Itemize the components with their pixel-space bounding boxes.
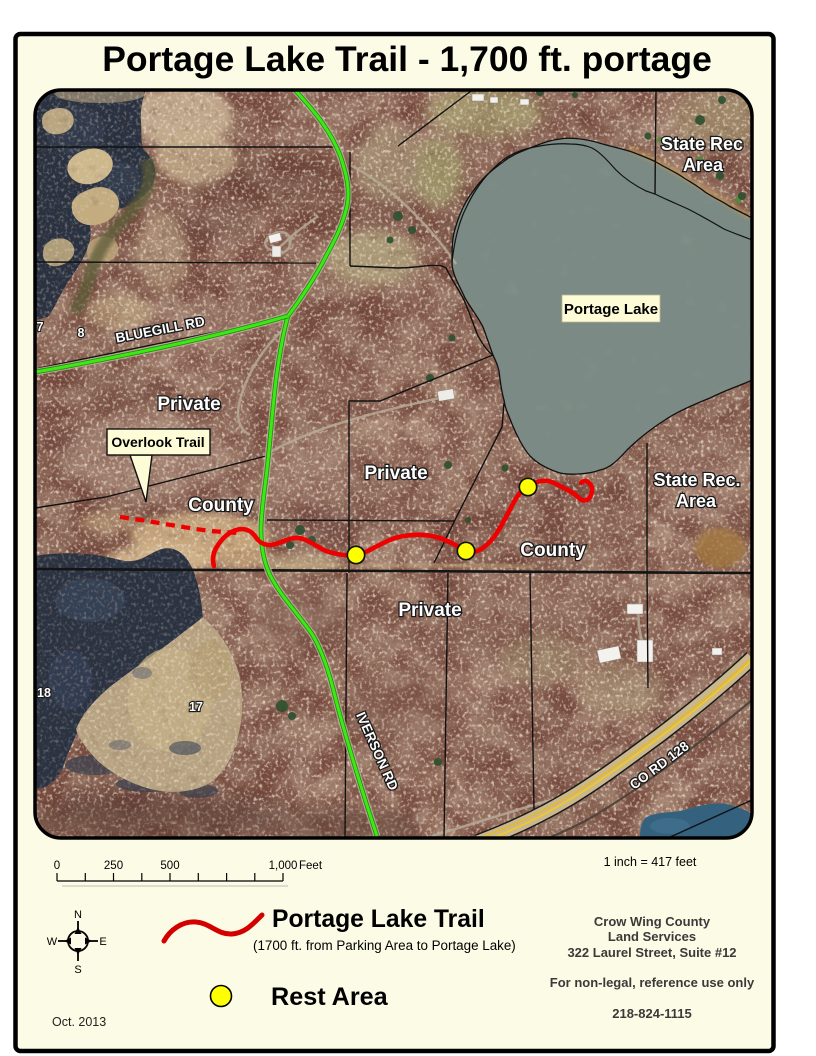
svg-text:N: N (74, 909, 82, 921)
svg-text:Feet: Feet (299, 860, 323, 872)
svg-text:State Rec.: State Rec. (653, 470, 740, 490)
svg-text:7: 7 (37, 320, 44, 334)
svg-text:500: 500 (160, 860, 179, 872)
svg-text:Portage Lake: Portage Lake (564, 301, 658, 318)
svg-text:Portage Lake Trail - 1,700 ft.: Portage Lake Trail - 1,700 ft. portage (102, 39, 712, 79)
svg-text:Portage Lake Trail: Portage Lake Trail (272, 906, 485, 933)
svg-text:Private: Private (364, 463, 427, 484)
svg-text:250: 250 (104, 860, 123, 872)
svg-text:0: 0 (54, 860, 60, 872)
svg-text:18: 18 (37, 686, 51, 700)
svg-text:County: County (520, 540, 586, 561)
svg-text:Area: Area (676, 491, 717, 511)
svg-text:Overlook Trail: Overlook Trail (111, 434, 204, 450)
svg-text:For non-legal, reference use o: For non-legal, reference use only (550, 975, 755, 990)
svg-text:1,000: 1,000 (269, 860, 298, 872)
svg-text:County: County (188, 495, 254, 516)
svg-text:Private: Private (157, 394, 220, 415)
svg-text:Oct. 2013: Oct. 2013 (52, 1015, 106, 1029)
svg-text:Private: Private (398, 600, 461, 621)
svg-text:Rest Area: Rest Area (271, 983, 389, 1011)
svg-text:E: E (99, 936, 106, 948)
svg-text:State Rec: State Rec (661, 134, 743, 154)
svg-text:S: S (74, 964, 81, 976)
svg-text:Area: Area (683, 155, 724, 175)
svg-text:W: W (47, 936, 58, 948)
svg-text:8: 8 (78, 326, 85, 340)
svg-text:Crow Wing County: Crow Wing County (594, 914, 711, 929)
svg-text:Land Services: Land Services (608, 929, 696, 944)
svg-text:17: 17 (189, 700, 203, 714)
svg-text:1 inch = 417 feet: 1 inch = 417 feet (604, 855, 697, 869)
svg-text:218-824-1115: 218-824-1115 (612, 1006, 692, 1021)
svg-text:(1700 ft. from Parking Area to: (1700 ft. from Parking Area to Portage L… (253, 938, 516, 953)
svg-text:322 Laurel Street, Suite #12: 322 Laurel Street, Suite #12 (567, 945, 736, 960)
